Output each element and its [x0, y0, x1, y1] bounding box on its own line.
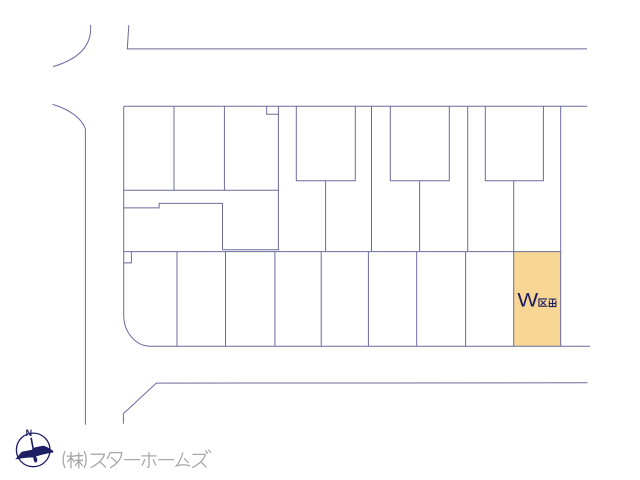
svg-text:W: W — [517, 290, 538, 311]
svg-text:N: N — [26, 428, 32, 438]
